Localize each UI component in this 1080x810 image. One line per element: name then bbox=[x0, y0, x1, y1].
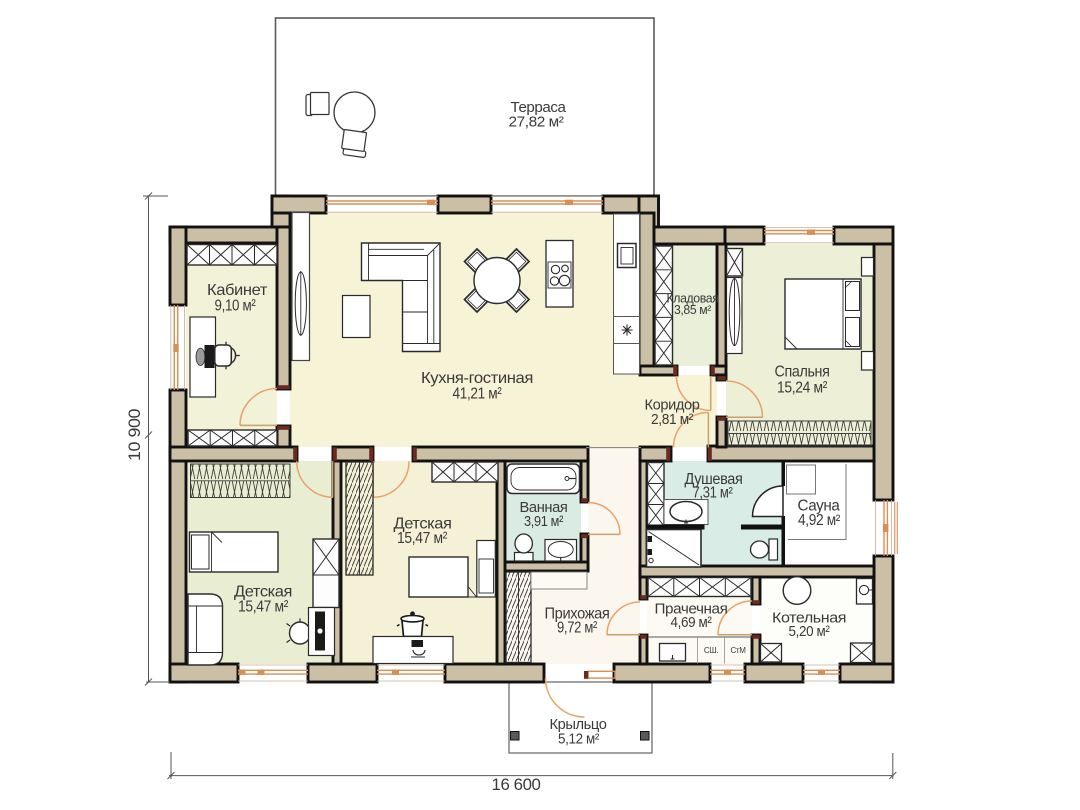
svg-text:СШ.: СШ. bbox=[704, 646, 718, 655]
svg-text:15,24 м²: 15,24 м² bbox=[777, 380, 828, 397]
svg-text:15,47 м²: 15,47 м² bbox=[238, 599, 289, 616]
svg-text:7,31 м²: 7,31 м² bbox=[693, 485, 733, 502]
svg-text:2,81 м²: 2,81 м² bbox=[651, 411, 693, 428]
svg-text:9,72 м²: 9,72 м² bbox=[557, 620, 598, 637]
svg-text:Кухня-гостиная: Кухня-гостиная bbox=[421, 370, 533, 387]
svg-text:15,47 м²: 15,47 м² bbox=[397, 530, 448, 547]
svg-text:16 600: 16 600 bbox=[492, 776, 541, 794]
svg-text:9,10 м²: 9,10 м² bbox=[215, 298, 257, 315]
svg-text:Спальня: Спальня bbox=[775, 364, 830, 381]
svg-text:4,92 м²: 4,92 м² bbox=[798, 512, 840, 529]
svg-text:10 900: 10 900 bbox=[126, 409, 144, 461]
svg-text:5,12 м²: 5,12 м² bbox=[558, 732, 600, 748]
svg-text:СтМ: СтМ bbox=[731, 646, 747, 655]
svg-text:41,21 м²: 41,21 м² bbox=[453, 386, 503, 403]
svg-text:3,85 м²: 3,85 м² bbox=[674, 302, 712, 317]
svg-text:27,82 м²: 27,82 м² bbox=[509, 115, 565, 131]
svg-text:3,91 м²: 3,91 м² bbox=[524, 513, 563, 530]
svg-text:5,20 м²: 5,20 м² bbox=[789, 623, 830, 640]
svg-text:Кабинет: Кабинет bbox=[207, 282, 268, 299]
svg-text:4,69 м²: 4,69 м² bbox=[671, 614, 712, 631]
